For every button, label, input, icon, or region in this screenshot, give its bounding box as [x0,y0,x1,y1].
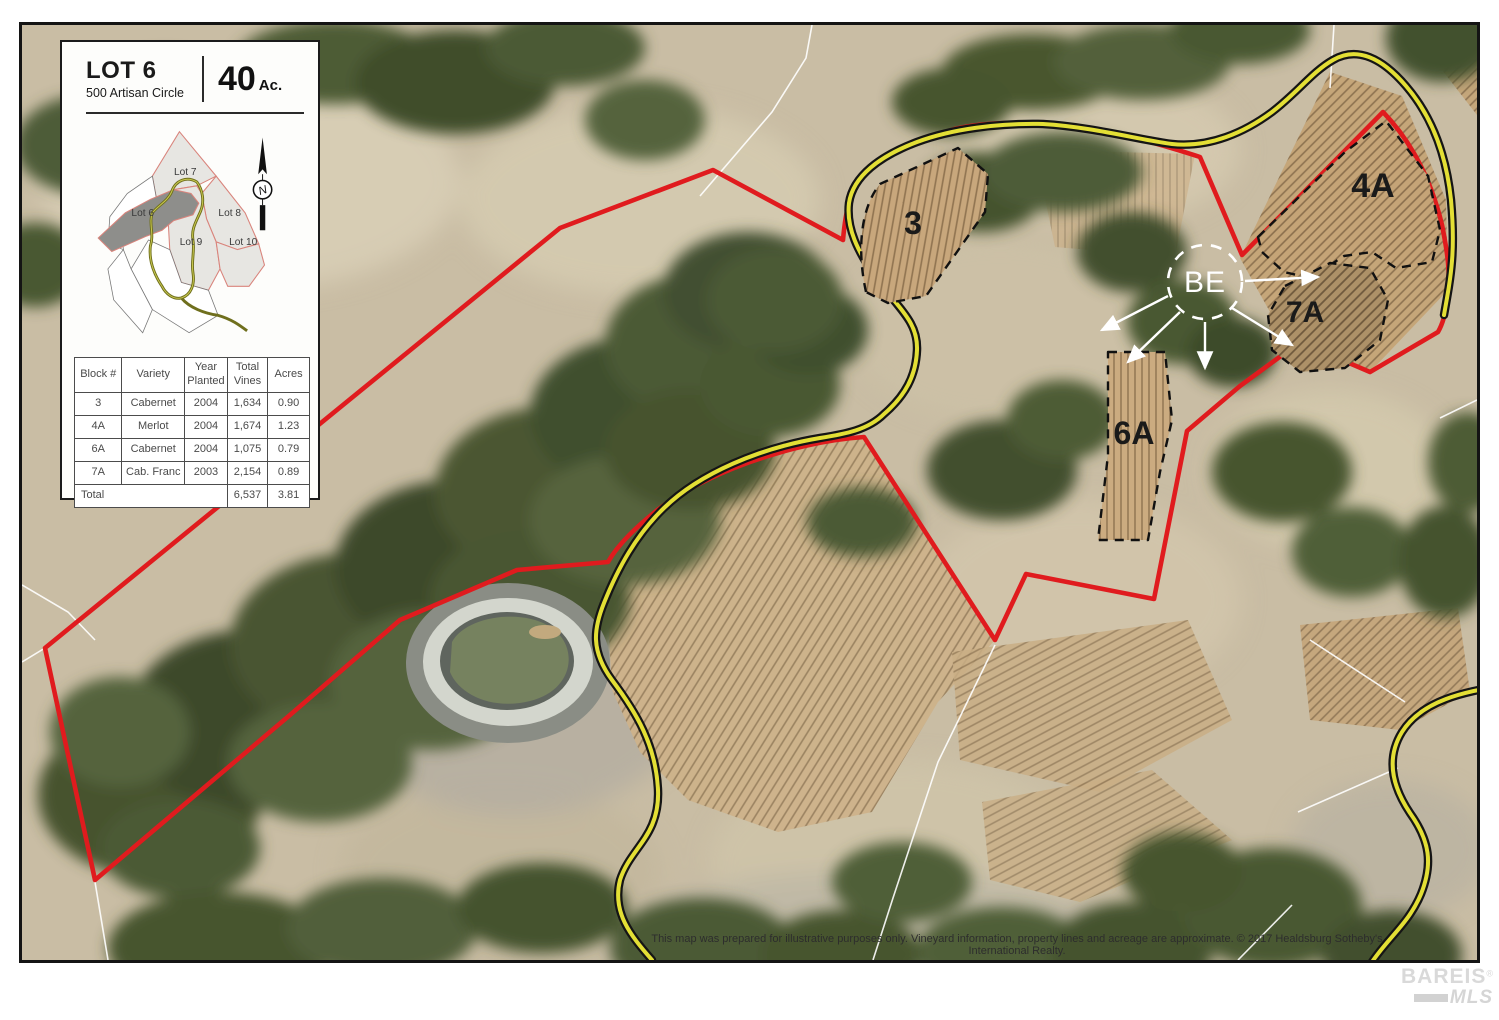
disclaimer-text: This map was prepared for illustrative p… [622,933,1412,957]
total-vines: 6,537 [227,485,267,508]
be-label: BE [1184,266,1226,299]
block-4a-label: 4A [1351,167,1394,205]
reservoir [406,583,610,743]
acreage: 40 Ac. [218,62,282,96]
inset-lot7-label: Lot 7 [174,167,197,178]
block-6a-label: 6A [1114,415,1155,451]
table-row: 4A Merlot 2004 1,674 1.23 [75,416,310,439]
inset-map: Lot 7 Lot 6 Lot 8 Lot 9 Lot 10 N [66,122,318,354]
acres-value: 40 [218,62,256,96]
inset-lot6-label: Lot 6 [131,208,154,219]
bareis-mls-logo: BAREIS® MLS [1393,966,1493,1007]
north-arrow: N [253,137,271,230]
map-frame: 3 4A 7A 6A BE LOT 6 500 Artisan Circle [19,22,1480,963]
total-acres: 3.81 [268,485,310,508]
info-panel: LOT 6 500 Artisan Circle 40 Ac. [60,40,320,500]
table-header-row: Block # Variety Year Planted Total Vines… [75,358,310,393]
logo-bar [1414,994,1448,1002]
table-total-row: Total 6,537 3.81 [75,485,310,508]
col-vines: Vines [234,375,261,387]
col-year: Planted [187,375,224,387]
block-7a-label: 7A [1286,296,1324,329]
block-3-label: 3 [904,205,922,241]
panel-rule [86,112,304,114]
title-divider [202,56,204,102]
lot-title: LOT 6 [86,59,184,83]
table-row: 7A Cab. Franc 2003 2,154 0.89 [75,462,310,485]
registered-mark: ® [1486,969,1493,979]
inset-lot8-label: Lot 8 [218,208,241,219]
acres-unit: Ac. [259,77,282,94]
table-row: 6A Cabernet 2004 1,075 0.79 [75,439,310,462]
mls-logo-text: MLS [1450,988,1493,1007]
col-variety: Variety [137,368,170,380]
total-label: Total [75,485,228,508]
panel-title-row: LOT 6 500 Artisan Circle 40 Ac. [62,42,318,108]
block-table: Block # Variety Year Planted Total Vines… [74,357,310,508]
bareis-logo-text: BAREIS [1401,965,1486,988]
lot-address: 500 Artisan Circle [86,86,184,100]
inset-lot10-shape [216,242,264,286]
inset-lot10-label: Lot 10 [229,237,258,248]
col-acres: Acres [274,368,302,380]
col-block: Block # [80,368,116,380]
inset-lot9-label: Lot 9 [180,237,203,248]
reservoir-sandbar [529,625,561,639]
table-row: 3 Cabernet 2004 1,634 0.90 [75,393,310,416]
